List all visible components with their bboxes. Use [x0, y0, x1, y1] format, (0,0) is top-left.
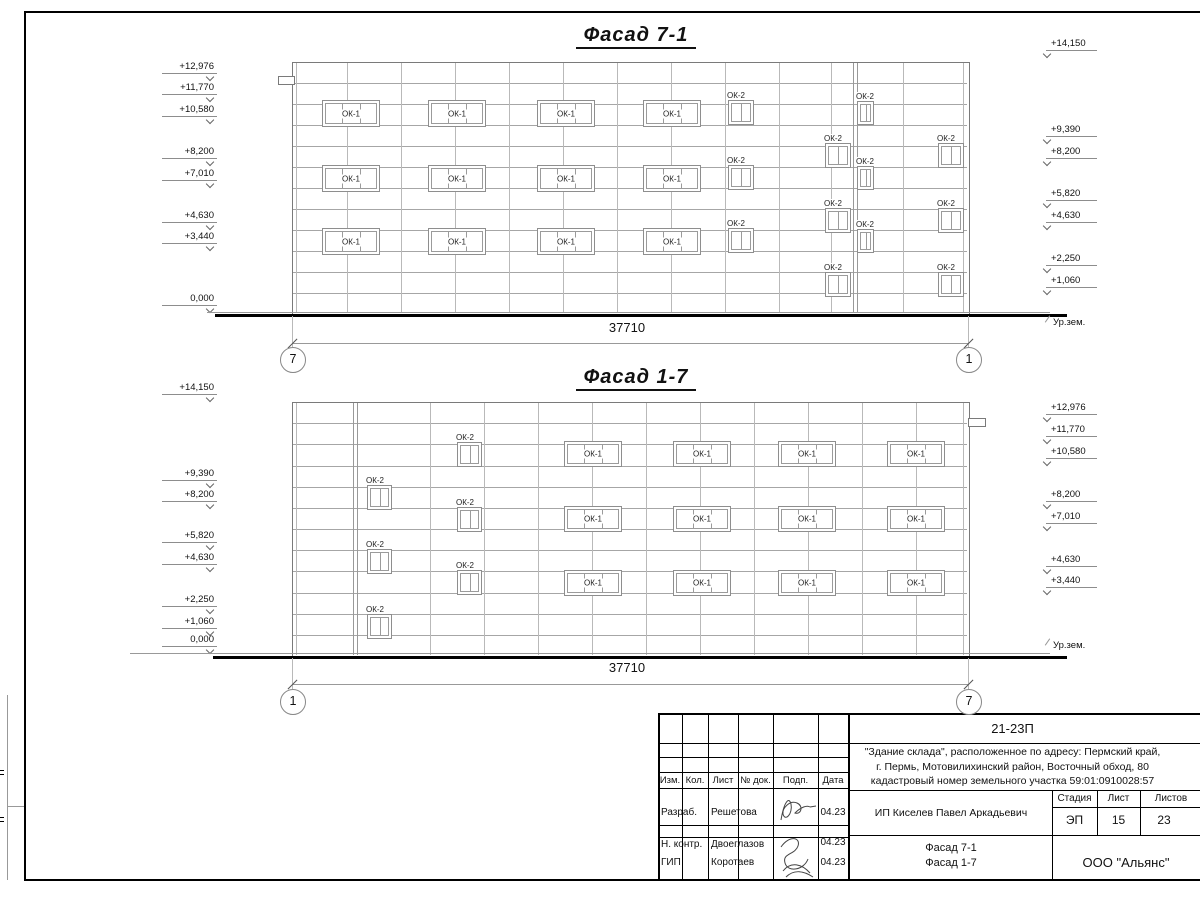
window-label: ОК-2 — [936, 199, 956, 208]
window-label: ОК-1 — [692, 579, 712, 588]
elevation-mark-right: +1,060 — [1046, 275, 1097, 288]
row-role-razrab: Разраб. — [661, 806, 697, 820]
facade-1-7-building — [292, 402, 970, 658]
facade-7-1-dim-line — [292, 343, 968, 344]
window-ок-1: ОК-1 — [428, 100, 486, 127]
project-description-line3: кадастровый номер земельного участка 59:… — [850, 774, 1175, 789]
window-label: ОК-1 — [662, 174, 682, 183]
window-mullion — [380, 488, 381, 507]
facade-1-7-panel-line — [293, 529, 967, 530]
facade-1-7-column-line — [484, 403, 485, 655]
titleblock-hline-8 — [658, 837, 848, 838]
titleblock-hline-5 — [848, 790, 1200, 791]
ground-level-tick-icon — [1045, 638, 1050, 645]
window-mullion — [951, 211, 952, 230]
window-ок-1: ОК-1 — [322, 165, 380, 192]
facade-7-1-panel-line — [293, 293, 967, 294]
sheet-name-line2: Фасад 1-7 — [850, 856, 1052, 871]
window-ок-2: ОК-2 — [857, 229, 874, 253]
col-header-data: Дата — [818, 773, 848, 788]
elevation-mark-right: +3,440 — [1046, 575, 1097, 588]
window-label: ОК-2 — [726, 156, 746, 165]
window-ок-1: ОК-1 — [564, 441, 622, 467]
facade-7-1-panel-line — [293, 146, 967, 147]
frame-margin-mark2 — [0, 774, 4, 775]
window-mullion — [470, 445, 471, 464]
window-mullion — [380, 617, 381, 636]
elevation-mark-right: +5,820 — [1046, 188, 1097, 201]
window-ок-1: ОК-1 — [643, 100, 701, 127]
titleblock-vline-7 — [1052, 790, 1053, 881]
window-label: ОК-1 — [906, 450, 926, 459]
window-label: ОК-1 — [583, 515, 603, 524]
facade-7-1-ledge — [278, 76, 295, 85]
window-label: ОК-1 — [341, 237, 361, 246]
frame-margin-mark3 — [0, 817, 4, 818]
facade-1-7-dim-line — [292, 684, 968, 685]
facade-7-1-panel-line — [293, 125, 967, 126]
window-ок-1: ОК-1 — [564, 506, 622, 532]
col-header-izm: Изм. — [658, 773, 682, 788]
facade-1-7-ground-thin — [130, 653, 1050, 654]
window-ок-2: ОК-2 — [367, 614, 392, 639]
elevation-arrow-icon — [1043, 566, 1051, 574]
facade-7-1-title: Фасад 7-1 — [526, 25, 746, 49]
window-ок-2: ОК-2 — [825, 272, 851, 297]
facade-1-7-panel-line — [293, 444, 967, 445]
window-ок-2: ОК-2 — [457, 442, 482, 467]
window-ок-1: ОК-1 — [673, 570, 731, 596]
window-ок-1: ОК-1 — [778, 570, 836, 596]
elevation-arrow-icon — [1043, 436, 1051, 444]
titleblock-hline-3 — [658, 772, 848, 773]
titleblock-vline-4 — [773, 713, 774, 881]
elevation-arrow-icon — [206, 73, 214, 81]
frame-margin-mark4 — [0, 821, 4, 822]
facade-7-1-title-text: Фасад 7-1 — [576, 25, 697, 49]
facade-7-1-wall-break-line — [853, 63, 854, 313]
frame-margin-divider — [7, 806, 24, 807]
facade-1-7-column-line — [862, 403, 863, 655]
frame-margin-mark1 — [0, 770, 4, 771]
window-label: ОК-1 — [447, 174, 467, 183]
window-label: ОК-1 — [447, 237, 467, 246]
facade-7-1-edge-line-left — [296, 63, 297, 313]
axis-bubble-1: 1 — [956, 347, 982, 373]
window-ок-1: ОК-1 — [887, 441, 945, 467]
row-name-gip: Коротаев — [711, 856, 754, 870]
window-mullion — [951, 275, 952, 294]
window-label: ОК-2 — [823, 134, 843, 143]
window-mullion — [838, 275, 839, 294]
window-label: ОК-1 — [556, 174, 576, 183]
elevation-arrow-icon — [1043, 136, 1051, 144]
titleblock-vline-0 — [658, 713, 660, 881]
window-label: ОК-2 — [823, 263, 843, 272]
facade-7-1-panel-line — [293, 209, 967, 210]
elevation-arrow-icon — [1043, 458, 1051, 466]
row-date-nkontr: 04.23 — [818, 836, 848, 850]
facade-7-1-dim-text: 37710 — [597, 321, 657, 335]
elevation-arrow-icon — [1043, 222, 1051, 230]
elevation-arrow-icon — [1043, 523, 1051, 531]
window-label: ОК-1 — [692, 450, 712, 459]
window-label: ОК-2 — [726, 219, 746, 228]
window-mullion — [838, 146, 839, 165]
window-ок-2: ОК-2 — [938, 208, 964, 233]
facade-1-7-wall-break-line — [353, 403, 354, 655]
ground-level-label: Ур.зем. — [1053, 317, 1093, 328]
titleblock-vline-6 — [848, 713, 850, 881]
window-label: ОК-2 — [823, 199, 843, 208]
facade-1-7-dim-text: 37710 — [597, 661, 657, 675]
elevation-arrow-icon — [1043, 200, 1051, 208]
window-ок-2: ОК-2 — [728, 228, 754, 253]
facade-7-1-panel-line — [293, 83, 967, 84]
elevation-mark-right: +4,630 — [1046, 210, 1097, 223]
window-label: ОК-2 — [455, 433, 475, 442]
stage-header: Стадия — [1052, 792, 1097, 806]
sheets-header: Листов — [1140, 792, 1200, 806]
elevation-arrow-icon — [206, 606, 214, 614]
elevation-arrow-icon — [206, 158, 214, 166]
facade-1-7-panel-line — [293, 550, 967, 551]
facade-1-7-wall-break-line — [357, 403, 358, 655]
window-ок-2: ОК-2 — [857, 166, 874, 190]
window-mullion — [380, 552, 381, 571]
facade-7-1-column-line — [779, 63, 780, 313]
window-ок-2: ОК-2 — [367, 485, 392, 510]
sheet-header: Лист — [1097, 792, 1140, 806]
axis-bubble-1: 1 — [280, 689, 306, 715]
facade-7-1-column-line — [509, 63, 510, 313]
company-name: ООО "Альянс" — [1052, 850, 1200, 876]
sheet-name: Фасад 7-1 Фасад 1-7 — [850, 841, 1052, 871]
titleblock-vline-3 — [738, 713, 739, 881]
window-mullion — [951, 146, 952, 165]
window-mullion — [741, 231, 742, 250]
elevation-arrow-icon — [1043, 158, 1051, 166]
facade-1-7-edge-line-right — [963, 403, 964, 655]
elevation-arrow-icon — [206, 222, 214, 230]
window-mullion — [470, 510, 471, 529]
facade-1-7-panel-line — [293, 614, 967, 615]
elevation-mark-right: +4,630 — [1046, 554, 1097, 567]
window-ок-1: ОК-1 — [564, 570, 622, 596]
window-ок-1: ОК-1 — [537, 100, 595, 127]
window-ок-1: ОК-1 — [537, 228, 595, 255]
window-label: ОК-1 — [583, 450, 603, 459]
window-mullion — [741, 168, 742, 187]
facade-1-7-column-line — [538, 403, 539, 655]
window-label: ОК-2 — [855, 220, 875, 229]
signature-nkontr-gip — [772, 833, 820, 880]
col-header-kol: Кол. — [682, 773, 708, 788]
facade-1-7-column-line — [430, 403, 431, 655]
window-label: ОК-1 — [662, 237, 682, 246]
sheet-name-line1: Фасад 7-1 — [850, 841, 1052, 856]
facade-1-7-column-line — [754, 403, 755, 655]
window-label: ОК-2 — [365, 540, 385, 549]
facade-7-1-column-line — [903, 63, 904, 313]
window-ок-1: ОК-1 — [428, 165, 486, 192]
elevation-arrow-icon — [206, 501, 214, 509]
elevation-arrow-icon — [1043, 287, 1051, 295]
frame-top-line — [24, 11, 1200, 13]
elevation-arrow-icon — [1043, 587, 1051, 595]
window-ок-1: ОК-1 — [322, 228, 380, 255]
window-ок-2: ОК-2 — [938, 272, 964, 297]
elevation-arrow-icon — [206, 116, 214, 124]
window-ок-2: ОК-2 — [825, 208, 851, 233]
elevation-arrow-icon — [1043, 501, 1051, 509]
window-ок-1: ОК-1 — [778, 506, 836, 532]
titleblock-vline-1 — [682, 713, 683, 881]
window-mullion — [838, 211, 839, 230]
elevation-mark-right: +2,250 — [1046, 253, 1097, 266]
facade-7-1-ground-thick — [215, 314, 1067, 317]
elevation-arrow-icon — [206, 243, 214, 251]
window-label: ОК-2 — [936, 134, 956, 143]
window-label: ОК-2 — [455, 498, 475, 507]
titleblock-hline-6 — [1052, 807, 1200, 808]
frame-margin-line — [7, 695, 8, 880]
window-label: ОК-1 — [583, 579, 603, 588]
project-description-line1: "Здание склада", расположенное по адресу… — [850, 745, 1175, 760]
window-label: ОК-1 — [797, 450, 817, 459]
titleblock-hline-7 — [658, 825, 848, 826]
window-ок-1: ОК-1 — [428, 228, 486, 255]
stage-value: ЭП — [1052, 808, 1097, 832]
titleblock-vline-5 — [818, 713, 819, 881]
facade-1-7-panel-line — [293, 508, 967, 509]
window-label: ОК-1 — [556, 109, 576, 118]
facade-7-1-column-line — [401, 63, 402, 313]
elevation-mark-right: +11,770 — [1046, 424, 1097, 437]
window-label: ОК-1 — [662, 109, 682, 118]
window-label: ОК-1 — [447, 109, 467, 118]
facade-1-7-panel-line — [293, 466, 967, 467]
row-name-razrab: Решетова — [711, 806, 757, 820]
titleblock-hline-1 — [658, 743, 1200, 744]
window-mullion — [866, 104, 867, 122]
facade-1-7-panel-line — [293, 635, 967, 636]
window-ок-1: ОК-1 — [643, 228, 701, 255]
window-label: ОК-1 — [797, 579, 817, 588]
project-description: "Здание склада", расположенное по адресу… — [850, 745, 1175, 789]
frame-bottom-line — [24, 879, 1200, 881]
client-name: ИП Киселев Павел Аркадьевич — [850, 800, 1052, 826]
titleblock-hline-2 — [658, 757, 848, 758]
frame-left-line — [24, 11, 26, 880]
window-label: ОК-1 — [556, 237, 576, 246]
facade-7-1-column-line — [725, 63, 726, 313]
window-ок-2: ОК-2 — [728, 100, 754, 125]
elevation-arrow-icon — [1043, 414, 1051, 422]
window-label: ОК-2 — [855, 92, 875, 101]
facade-1-7-edge-line-left — [296, 403, 297, 655]
facade-1-7-ground-thick — [213, 656, 1067, 659]
facade-1-7-ledge — [968, 418, 986, 427]
window-label: ОК-2 — [936, 263, 956, 272]
elevation-mark-right: +12,976 — [1046, 402, 1097, 415]
elevation-arrow-icon — [206, 394, 214, 402]
elevation-arrow-icon — [206, 180, 214, 188]
project-code: 21-23П — [850, 716, 1175, 742]
window-label: ОК-1 — [906, 579, 926, 588]
ground-level-label: Ур.зем. — [1053, 640, 1093, 651]
window-ок-1: ОК-1 — [778, 441, 836, 467]
window-ок-2: ОК-2 — [457, 507, 482, 532]
facade-1-7-column-line — [646, 403, 647, 655]
row-date-gip: 04.23 — [818, 856, 848, 870]
axis-bubble-7: 7 — [956, 689, 982, 715]
window-ок-2: ОК-2 — [457, 570, 482, 595]
facade-1-7-title-text: Фасад 1-7 — [576, 367, 697, 391]
window-label: ОК-2 — [365, 476, 385, 485]
facade-1-7-title: Фасад 1-7 — [526, 367, 746, 391]
elevation-mark-right: +9,390 — [1046, 124, 1097, 137]
window-ок-2: ОК-2 — [728, 165, 754, 190]
window-label: ОК-2 — [455, 561, 475, 570]
facade-1-7-panel-line — [293, 487, 967, 488]
elevation-mark-right: +8,200 — [1046, 146, 1097, 159]
window-mullion — [741, 103, 742, 122]
signature-razrab — [774, 790, 818, 826]
window-ок-2: ОК-2 — [825, 143, 851, 168]
facade-7-1-column-line — [617, 63, 618, 313]
col-header-podp: Подп. — [773, 773, 818, 788]
window-label: ОК-2 — [365, 605, 385, 614]
facade-1-7-panel-line — [293, 593, 967, 594]
titleblock-hline-4 — [658, 788, 848, 789]
window-ок-1: ОК-1 — [887, 570, 945, 596]
titleblock-hline-9 — [848, 835, 1200, 836]
elevation-arrow-icon — [206, 564, 214, 572]
project-description-line2: г. Пермь, Мотовилихинский район, Восточн… — [850, 760, 1175, 775]
window-label: ОК-1 — [906, 515, 926, 524]
axis-bubble-7: 7 — [280, 347, 306, 373]
row-date-razrab: 04.23 — [818, 806, 848, 820]
window-ок-1: ОК-1 — [673, 506, 731, 532]
window-ок-1: ОК-1 — [887, 506, 945, 532]
facade-1-7-panel-line — [293, 571, 967, 572]
facade-7-1-panel-line — [293, 272, 967, 273]
window-label: ОК-1 — [692, 515, 712, 524]
facade-7-1-ground-thin — [207, 312, 1050, 313]
elevation-arrow-icon — [1043, 50, 1051, 58]
facade-1-7-panel-line — [293, 423, 967, 424]
elevation-arrow-icon — [1043, 265, 1051, 273]
col-header-list: Лист — [708, 773, 738, 788]
elevation-mark-right: +7,010 — [1046, 511, 1097, 524]
window-ок-1: ОК-1 — [643, 165, 701, 192]
sheets-value: 23 — [1140, 808, 1188, 832]
elevation-mark-right: +10,580 — [1046, 446, 1097, 459]
elevation-arrow-icon — [206, 94, 214, 102]
titleblock-vline-8 — [1097, 790, 1098, 835]
window-ок-2: ОК-2 — [367, 549, 392, 574]
titleblock-vline-9 — [1140, 790, 1141, 835]
window-ок-1: ОК-1 — [673, 441, 731, 467]
sheet-value: 15 — [1097, 808, 1140, 832]
window-label: ОК-1 — [797, 515, 817, 524]
window-mullion — [866, 232, 867, 250]
window-mullion — [866, 169, 867, 187]
window-label: ОК-2 — [855, 157, 875, 166]
window-ок-1: ОК-1 — [537, 165, 595, 192]
elevation-arrow-icon — [206, 480, 214, 488]
elevation-mark-right: +8,200 — [1046, 489, 1097, 502]
drawing-sheet: 21-23П "Здание склада", расположенное по… — [0, 0, 1200, 900]
titleblock-hline-0 — [658, 713, 1200, 715]
window-label: ОК-2 — [726, 91, 746, 100]
window-ок-2: ОК-2 — [938, 143, 964, 168]
window-ок-1: ОК-1 — [322, 100, 380, 127]
window-label: ОК-1 — [341, 174, 361, 183]
elevation-arrow-icon — [206, 542, 214, 550]
window-mullion — [470, 573, 471, 592]
row-role-gip: ГИП — [661, 856, 681, 870]
window-ок-2: ОК-2 — [857, 101, 874, 125]
elevation-mark-right: +14,150 — [1046, 38, 1097, 51]
col-header-ndok: № док. — [738, 773, 773, 788]
window-label: ОК-1 — [341, 109, 361, 118]
titleblock-vline-2 — [708, 713, 709, 881]
